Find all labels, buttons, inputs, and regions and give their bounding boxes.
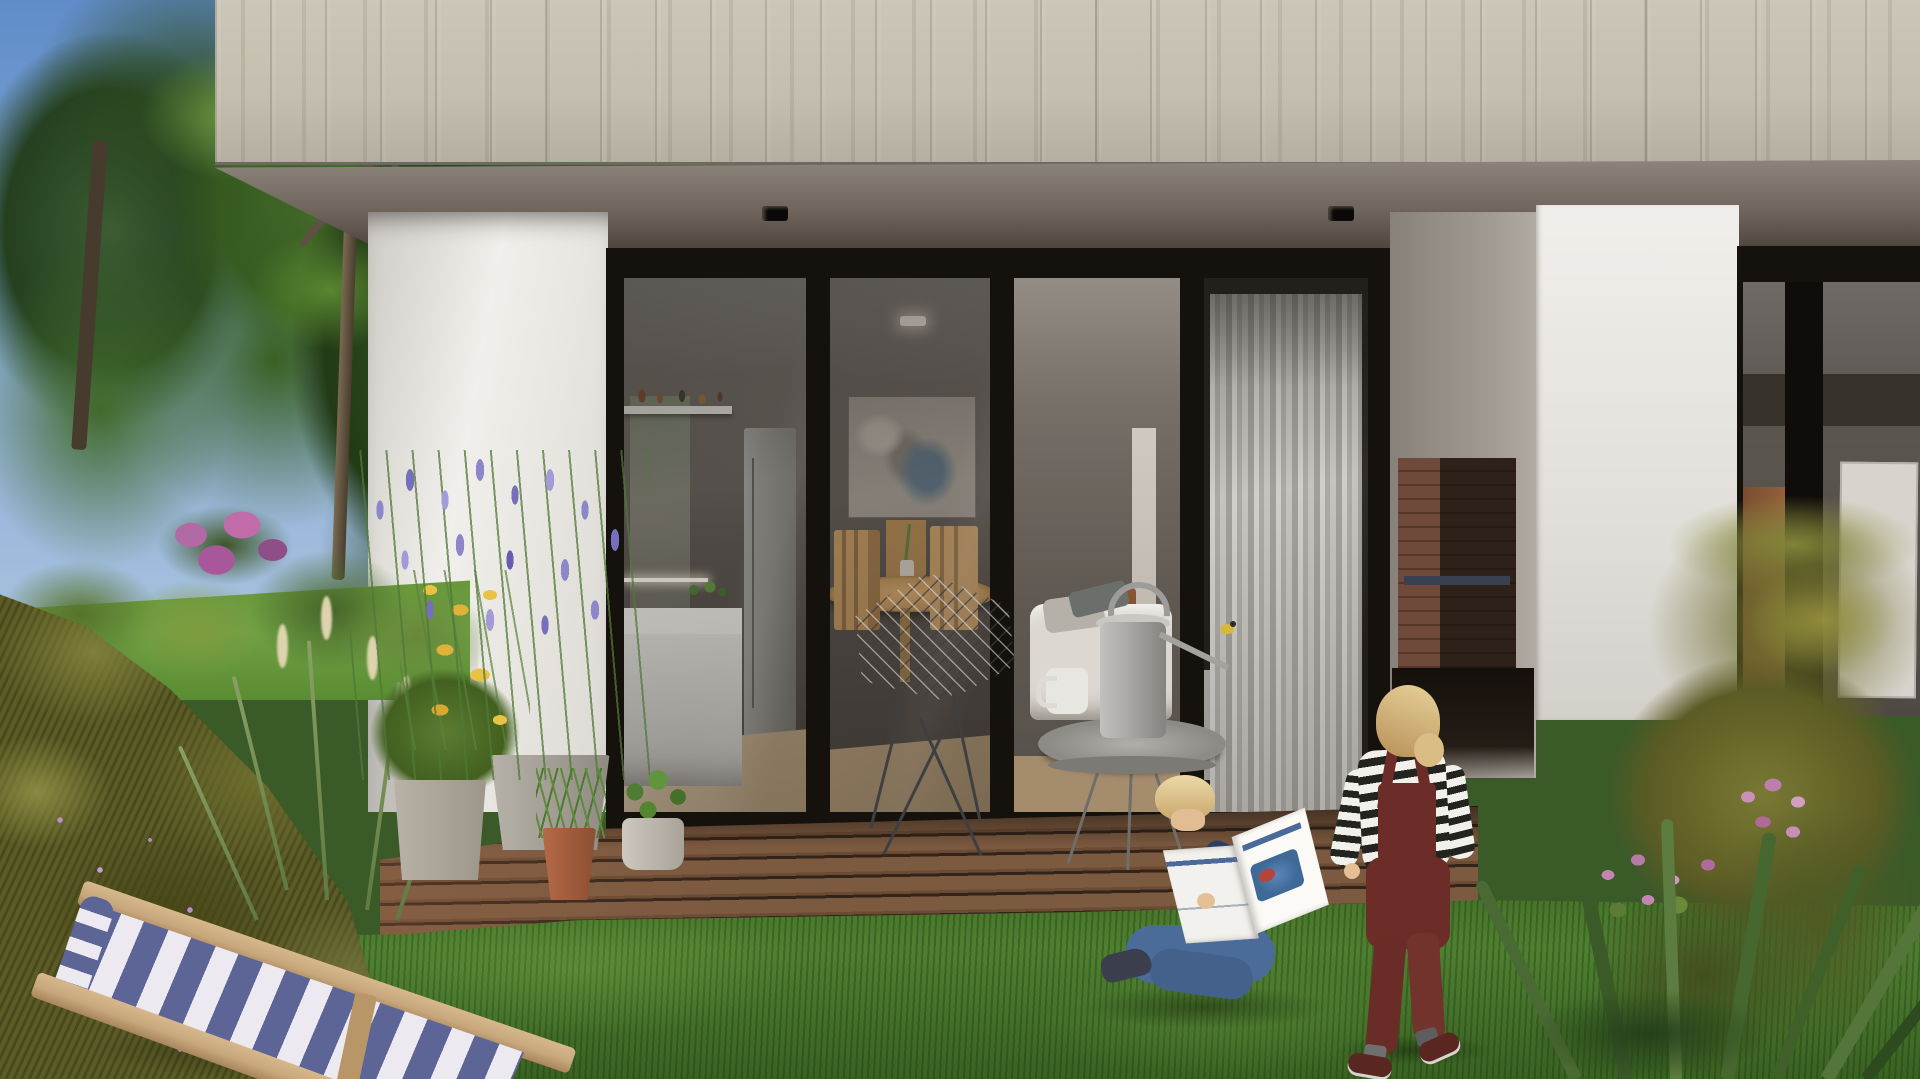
overall-leg (1365, 934, 1407, 1054)
girl-shoe (1347, 1051, 1394, 1078)
tall-grass (1530, 795, 1920, 1079)
girl-standing (1330, 685, 1485, 1079)
overall-leg (1406, 932, 1445, 1040)
watering-can (1100, 622, 1166, 738)
soffit-spotlight (1328, 206, 1354, 221)
stone-planter (390, 780, 490, 880)
white-jug (1046, 668, 1088, 714)
wire-chair-shell (845, 572, 1015, 742)
table-rim (1048, 756, 1216, 774)
small-bird (1220, 624, 1234, 634)
grass-plume (277, 624, 288, 668)
soffit-spotlight (762, 206, 788, 221)
grass-plume (321, 596, 332, 640)
reflection-band (1743, 374, 1920, 426)
girl-hair-bun (1414, 733, 1444, 767)
lavender-planter (350, 450, 650, 780)
small-pot (622, 818, 684, 870)
brick-lining (1398, 458, 1440, 670)
chair-leg (869, 702, 903, 829)
girl-hand (1344, 863, 1360, 879)
grill-shelf (1404, 576, 1510, 585)
fireplace-niche (1398, 458, 1516, 670)
niche-back (1440, 458, 1516, 670)
wire-chair (845, 572, 1020, 872)
planter-group (360, 450, 730, 950)
bush-highlight (1748, 565, 1898, 675)
grass-base (1530, 989, 1770, 1079)
boy-face (1171, 809, 1205, 831)
grass-blade (232, 676, 289, 890)
grass-leaf (1821, 868, 1920, 1079)
boy-hand (1197, 893, 1215, 909)
concrete-facade (215, 0, 1920, 165)
terracotta-pot (542, 828, 596, 900)
overall-bib (1378, 783, 1436, 861)
pot-grass (536, 768, 606, 838)
architectural-rendering (0, 0, 1920, 1079)
flowering-shrub (140, 495, 310, 595)
boy-reading-book (1085, 775, 1325, 1025)
grass-blade (307, 640, 329, 900)
